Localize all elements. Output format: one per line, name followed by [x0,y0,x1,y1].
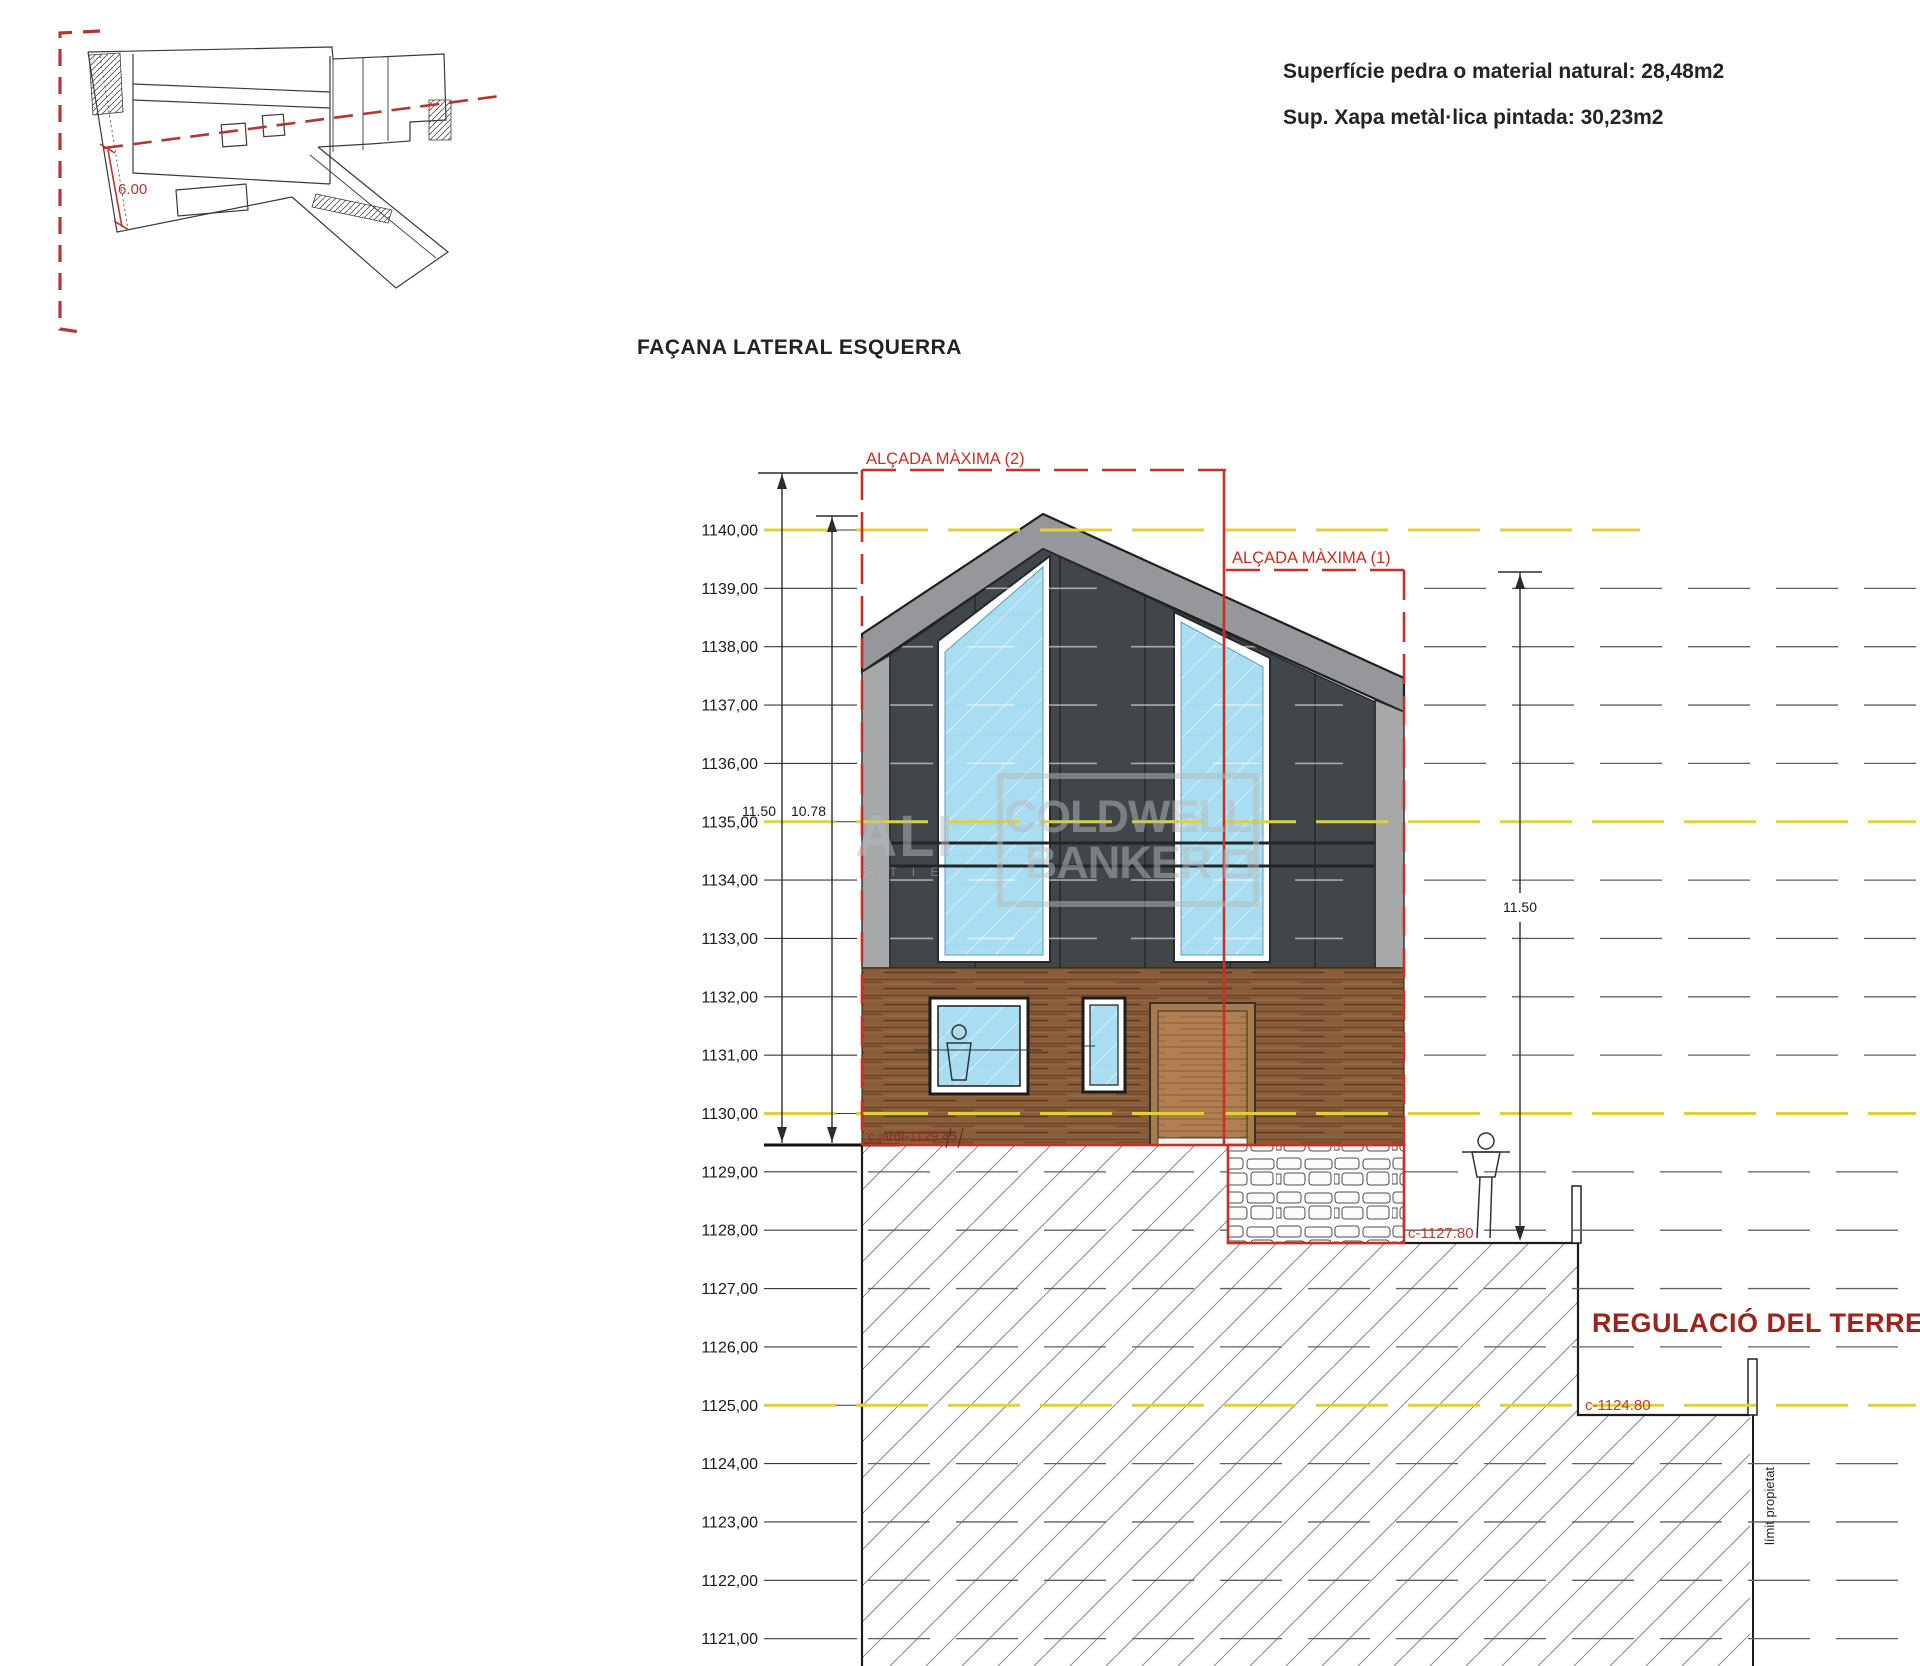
plan-outline-top [88,47,446,147]
garden-level-label: c.jardí-1129.45 [868,1129,957,1144]
level-label: 1129,00 [701,1164,758,1181]
level-label: 1125,00 [701,1398,758,1415]
level-axis-labels: 1140,001139,001138,001137,001136,001135,… [701,523,758,1649]
alcada-maxima-1-label: ALÇADA MÀXIMA (1) [1232,548,1391,567]
terrain-regulation-label: REGULACIÓ DEL TERRENY [1592,1307,1920,1338]
plan-pool [176,184,248,216]
level-label: 1140,00 [701,523,758,540]
arrowhead [777,1127,787,1142]
level-label: 1134,00 [701,873,758,890]
level-label: 1124,00 [701,1456,758,1473]
level-label: 1127,00 [701,1281,758,1298]
watermark-left-big: ALI [855,804,954,869]
ground-square-window [914,998,1042,1094]
level-label: 1130,00 [701,1106,758,1123]
level-axis-ticks [764,530,857,1639]
person-pictogram-standing [1462,1133,1510,1238]
alcada-maxima-2-label: ALÇADA MÀXIMA (2) [866,449,1025,468]
level-label: 1133,00 [701,931,758,948]
ground-narrow-window [1083,998,1125,1092]
level-label: 1138,00 [701,639,758,656]
elevation-drawing-canvas: 6.00 Superfície pedra o material natural… [0,0,1920,1666]
dim-left-inner-value: 10.78 [791,803,826,819]
level-1124-label: c-1124.80 [1585,1397,1651,1414]
dim-right-value: 11.50 [1503,899,1537,915]
property-limit-label: límit propietat [1762,1467,1777,1545]
watermark-left-small: R T I E [866,865,945,879]
level-label: 1122,00 [701,1573,758,1590]
right-fascia-strip [1375,700,1404,968]
arrowhead [827,1127,837,1142]
watermark-brand-line2: BANKER [1025,837,1212,888]
plan-roof-rect [133,54,330,184]
level-label: 1131,00 [701,1048,758,1065]
level-label: 1128,00 [701,1223,758,1240]
stone-plinth [1228,1145,1404,1243]
entrance-door [1150,1003,1255,1145]
plan-stair-hatch-1 [89,53,123,115]
retaining-wall-post-1 [1572,1186,1581,1243]
arrowhead [777,474,787,489]
level-1127-label: c-1127.80 [1408,1225,1474,1242]
arrowhead [1515,1226,1525,1241]
drawing-title: FAÇANA LATERAL ESQUERRA [637,336,962,359]
plan-stair-hatch-2 [312,194,392,223]
level-label: 1126,00 [701,1339,758,1356]
level-label: 1121,00 [701,1631,758,1648]
plan-dimension-label: 6.00 [118,181,147,198]
plan-ridge-lines [133,84,330,108]
level-label: 1137,00 [701,698,758,715]
site-plan-thumbnail: 6.00 [60,31,500,332]
plan-corridor-lines [333,56,388,152]
dim-left-outer-value: 11.50 [742,803,776,819]
arrowhead [1515,574,1525,589]
drawing-sheet: 6.00 Superfície pedra o material natural… [0,0,1920,1666]
arrowhead [827,517,837,532]
watermark-brand-line1: COLDWELL [1005,791,1252,842]
level-label: 1139,00 [701,581,758,598]
level-label: 1136,00 [701,756,758,773]
sheet-texts: Superfície pedra o material natural: 28,… [637,60,1724,359]
note-surface-metal: Sup. Xapa metàl·lica pintada: 30,23m2 [1283,106,1663,129]
level-label: 1123,00 [701,1514,758,1531]
plan-skylight-1 [221,123,246,147]
note-surface-stone: Superfície pedra o material natural: 28,… [1283,60,1724,83]
level-label: 1132,00 [701,989,758,1006]
